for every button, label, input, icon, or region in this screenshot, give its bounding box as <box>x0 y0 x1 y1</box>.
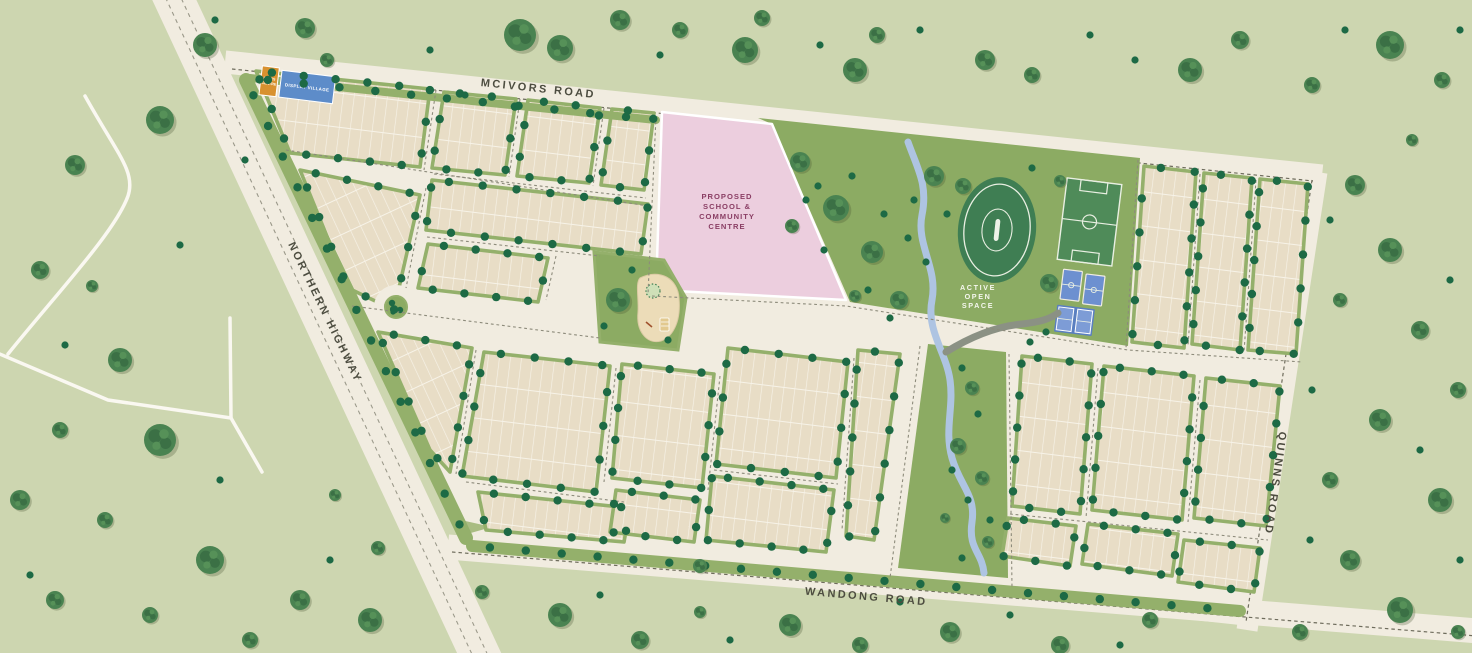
street-tree <box>1133 262 1141 270</box>
street-tree <box>641 178 649 186</box>
street-tree <box>585 500 593 508</box>
street-tree <box>280 134 288 142</box>
street-tree <box>1097 400 1105 408</box>
street-tree <box>1091 464 1099 472</box>
street-tree <box>799 546 807 554</box>
street-tree <box>881 460 889 468</box>
street-tree <box>1154 341 1162 349</box>
street-tree <box>1275 387 1283 395</box>
street-tree <box>567 533 575 541</box>
street-tree <box>480 516 488 524</box>
small-tree <box>958 554 965 561</box>
street-tree <box>503 249 511 257</box>
street-tree <box>382 367 390 375</box>
small-tree <box>1308 386 1315 393</box>
small-tree <box>964 496 971 503</box>
street-tree <box>590 488 598 496</box>
small-tree <box>211 16 218 23</box>
street-tree <box>1179 371 1187 379</box>
residential-block <box>1248 179 1308 354</box>
street-tree <box>853 365 861 373</box>
street-tree <box>837 424 845 432</box>
street-tree <box>586 109 594 117</box>
street-tree <box>1187 234 1195 242</box>
street-tree <box>1255 188 1263 196</box>
street-tree <box>522 546 530 554</box>
street-tree <box>418 149 426 157</box>
street-tree <box>1203 604 1211 612</box>
street-tree <box>1057 508 1065 516</box>
street-tree <box>1217 171 1225 179</box>
street-tree <box>334 154 342 162</box>
street-tree <box>827 507 835 515</box>
street-tree <box>390 305 398 313</box>
small-tree <box>326 556 333 563</box>
school-label-line2: SCHOOL & <box>703 202 751 211</box>
small-tree <box>1086 31 1093 38</box>
school-label-line1: PROPOSED <box>701 192 752 201</box>
small-tree <box>880 210 887 217</box>
street-tree <box>1301 216 1309 224</box>
street-tree <box>999 552 1007 560</box>
street-tree <box>421 336 429 344</box>
street-tree <box>697 368 705 376</box>
street-tree <box>550 105 558 113</box>
street-tree <box>715 427 723 435</box>
street-tree <box>1299 250 1307 258</box>
street-tree <box>1017 360 1025 368</box>
street-tree <box>1243 244 1251 252</box>
street-tree <box>819 485 827 493</box>
residential-block <box>1012 356 1092 514</box>
street-tree <box>660 492 668 500</box>
street-tree <box>614 404 622 412</box>
street-tree <box>1080 544 1088 552</box>
street-tree <box>514 102 522 110</box>
small-tree <box>61 341 68 348</box>
small-tree <box>1456 26 1463 33</box>
small-tree <box>910 196 917 203</box>
street-tree <box>255 75 263 83</box>
street-tree <box>366 157 374 165</box>
street-tree <box>293 183 301 191</box>
street-tree <box>1063 561 1071 569</box>
street-tree <box>427 183 435 191</box>
open-space-label: ACTIVE OPEN SPACE <box>960 283 996 310</box>
street-tree <box>479 181 487 189</box>
street-tree <box>1148 367 1156 375</box>
street-tree <box>844 501 852 509</box>
street-tree <box>585 175 593 183</box>
street-tree <box>367 336 375 344</box>
street-tree <box>476 369 484 377</box>
small-tree <box>1446 276 1453 283</box>
street-tree <box>1013 423 1021 431</box>
street-tree <box>1066 357 1074 365</box>
street-tree <box>708 474 716 482</box>
street-tree <box>848 433 856 441</box>
street-tree <box>459 392 467 400</box>
map-canvas: SALES CENTRE DISPLAY VILLAGE MCIVORS ROA… <box>0 0 1472 653</box>
residential-block <box>1178 540 1260 592</box>
small-tree <box>216 476 223 483</box>
street-tree <box>441 490 449 498</box>
street-tree <box>691 495 699 503</box>
street-tree <box>440 242 448 250</box>
street-tree <box>1077 497 1085 505</box>
street-tree <box>392 368 400 376</box>
street-tree <box>423 217 431 225</box>
street-tree <box>747 464 755 472</box>
street-tree <box>490 490 498 498</box>
street-tree <box>1031 557 1039 565</box>
street-tree <box>595 111 603 119</box>
street-tree <box>1011 455 1019 463</box>
street-tree <box>264 76 272 84</box>
small-tree <box>241 156 248 163</box>
street-tree <box>841 390 849 398</box>
street-tree <box>1183 302 1191 310</box>
street-tree <box>1163 529 1171 537</box>
open-space-label-line3: SPACE <box>962 301 994 310</box>
street-tree <box>1250 256 1258 264</box>
street-tree <box>603 136 611 144</box>
street-tree <box>645 146 653 154</box>
street-tree <box>1052 519 1060 527</box>
small-tree <box>1341 26 1348 33</box>
small-tree <box>461 91 468 98</box>
street-tree <box>1197 434 1205 442</box>
street-tree <box>590 143 598 151</box>
street-tree <box>1185 425 1193 433</box>
small-tree <box>958 364 965 371</box>
street-tree <box>1020 516 1028 524</box>
street-tree <box>814 472 822 480</box>
street-tree <box>429 286 437 294</box>
street-tree <box>773 568 781 576</box>
street-tree <box>520 121 528 129</box>
street-tree <box>1009 487 1017 495</box>
street-tree <box>352 306 360 314</box>
street-tree <box>343 176 351 184</box>
street-tree <box>422 118 430 126</box>
street-tree <box>411 212 419 220</box>
street-tree <box>1180 336 1188 344</box>
residential-block <box>1092 366 1194 520</box>
small-tree <box>1131 56 1138 63</box>
street-tree <box>1034 354 1042 362</box>
residential-block <box>706 476 834 552</box>
school-label-line4: CENTRE <box>708 222 745 231</box>
street-tree <box>1191 497 1199 505</box>
street-tree <box>557 176 565 184</box>
street-tree <box>845 574 853 582</box>
street-tree <box>539 276 547 284</box>
street-tree <box>546 189 554 197</box>
street-tree <box>1060 592 1068 600</box>
street-tree <box>787 481 795 489</box>
street-tree <box>514 236 522 244</box>
street-tree <box>1205 516 1213 524</box>
street-tree <box>506 134 514 142</box>
street-tree <box>641 532 649 540</box>
street-tree <box>1141 512 1149 520</box>
street-tree <box>1132 525 1140 533</box>
street-tree <box>916 580 924 588</box>
street-tree <box>1157 570 1165 578</box>
street-tree <box>426 86 434 94</box>
street-tree <box>580 193 588 201</box>
street-tree <box>1183 457 1191 465</box>
small-tree <box>628 266 635 273</box>
street-tree <box>1079 465 1087 473</box>
street-tree <box>724 474 732 482</box>
street-tree <box>599 168 607 176</box>
street-tree <box>633 477 641 485</box>
street-tree <box>464 436 472 444</box>
street-tree <box>1128 330 1136 338</box>
street-tree <box>453 341 461 349</box>
street-tree <box>523 480 531 488</box>
street-tree <box>1175 567 1183 575</box>
street-tree <box>719 393 727 401</box>
street-tree <box>481 232 489 240</box>
small-tree <box>1026 338 1033 345</box>
street-tree <box>603 388 611 396</box>
street-tree <box>1238 312 1246 320</box>
street-tree <box>1025 504 1033 512</box>
small-tree <box>1028 164 1035 171</box>
street-tree <box>363 78 371 86</box>
residential-block <box>1132 166 1196 348</box>
street-tree <box>447 229 455 237</box>
small-tree <box>1416 446 1423 453</box>
street-tree <box>756 477 764 485</box>
street-tree <box>701 453 709 461</box>
street-tree <box>302 151 310 159</box>
street-tree <box>396 398 404 406</box>
street-tree <box>1190 200 1198 208</box>
street-tree <box>448 455 456 463</box>
street-tree <box>433 454 441 462</box>
street-tree <box>614 197 622 205</box>
small-tree <box>922 258 929 265</box>
street-tree <box>842 358 850 366</box>
street-tree <box>405 189 413 197</box>
street-tree <box>1185 268 1193 276</box>
rural-track <box>230 318 231 418</box>
street-tree <box>781 468 789 476</box>
street-tree <box>736 539 744 547</box>
street-tree <box>553 496 561 504</box>
street-tree <box>1089 495 1097 503</box>
street-tree <box>697 484 705 492</box>
small-tree <box>943 210 950 217</box>
residential-block <box>612 364 714 488</box>
street-tree <box>1173 515 1181 523</box>
street-tree <box>1202 342 1210 350</box>
residential-block <box>1002 518 1076 566</box>
street-tree <box>1227 585 1235 593</box>
street-tree <box>426 459 434 467</box>
street-tree <box>531 353 539 361</box>
street-tree <box>1199 184 1207 192</box>
street-tree <box>1248 177 1256 185</box>
street-tree <box>536 531 544 539</box>
street-tree <box>1228 541 1236 549</box>
street-tree <box>952 583 960 591</box>
street-tree <box>397 274 405 282</box>
street-tree <box>1196 218 1204 226</box>
soccer-field <box>1057 178 1122 266</box>
street-tree <box>279 152 287 160</box>
small-tree <box>1456 556 1463 563</box>
street-tree <box>548 240 556 248</box>
street-tree <box>622 113 630 121</box>
small-tree <box>820 246 827 253</box>
street-tree <box>737 565 745 573</box>
street-tree <box>497 350 505 358</box>
street-tree <box>522 493 530 501</box>
open-space-label-line2: OPEN <box>965 292 992 301</box>
street-tree <box>1245 211 1253 219</box>
street-tree <box>300 72 308 80</box>
street-tree <box>634 362 642 370</box>
street-tree <box>564 357 572 365</box>
street-tree <box>390 331 398 339</box>
street-tree <box>834 458 842 466</box>
street-tree <box>610 500 618 508</box>
street-tree <box>665 480 673 488</box>
street-tree <box>692 523 700 531</box>
street-tree <box>557 484 565 492</box>
street-tree <box>1192 286 1200 294</box>
small-tree <box>848 172 855 179</box>
street-tree <box>846 467 854 475</box>
street-tree <box>1085 401 1093 409</box>
street-tree <box>705 506 713 514</box>
street-tree <box>443 94 451 102</box>
street-tree <box>599 422 607 430</box>
street-tree <box>808 354 816 362</box>
street-tree <box>1256 347 1264 355</box>
street-tree <box>1255 547 1263 555</box>
street-tree <box>407 91 415 99</box>
small-tree <box>802 196 809 203</box>
street-tree <box>502 166 510 174</box>
street-tree <box>472 245 480 253</box>
street-tree <box>611 436 619 444</box>
street-tree <box>1273 177 1281 185</box>
street-tree <box>572 101 580 109</box>
street-tree <box>455 520 463 528</box>
street-tree <box>1082 433 1090 441</box>
street-tree <box>418 267 426 275</box>
street-tree <box>1116 364 1124 372</box>
street-tree <box>628 488 636 496</box>
street-tree <box>1294 318 1302 326</box>
street-tree <box>741 346 749 354</box>
residential-block <box>716 348 848 478</box>
street-tree <box>1188 393 1196 401</box>
street-tree <box>442 165 450 173</box>
street-tree <box>617 503 625 511</box>
street-tree <box>1157 164 1165 172</box>
street-tree <box>504 528 512 536</box>
street-tree <box>323 244 331 252</box>
street-tree <box>460 289 468 297</box>
street-tree <box>454 423 462 431</box>
street-tree <box>300 79 308 87</box>
street-tree <box>458 469 466 477</box>
street-tree <box>643 203 651 211</box>
street-tree <box>474 168 482 176</box>
street-tree <box>1135 228 1143 236</box>
street-tree <box>1250 379 1258 387</box>
street-tree <box>850 399 858 407</box>
street-tree <box>616 247 624 255</box>
street-tree <box>512 185 520 193</box>
open-space-label-line1: ACTIVE <box>960 283 996 292</box>
street-tree <box>492 293 500 301</box>
street-tree <box>708 389 716 397</box>
small-tree <box>1116 641 1123 648</box>
street-tree <box>558 549 566 557</box>
small-tree <box>1306 536 1313 543</box>
street-tree <box>249 91 257 99</box>
street-tree <box>639 237 647 245</box>
street-tree <box>809 571 817 579</box>
street-tree <box>845 532 853 540</box>
street-tree <box>1241 278 1249 286</box>
small-tree <box>986 516 993 523</box>
sandpit <box>660 318 669 331</box>
small-tree <box>948 466 955 473</box>
street-tree <box>374 182 382 190</box>
street-tree <box>1125 566 1133 574</box>
street-tree <box>431 147 439 155</box>
street-tree <box>704 421 712 429</box>
street-tree <box>871 347 879 355</box>
street-tree <box>1304 183 1312 191</box>
street-tree <box>470 402 478 410</box>
street-tree <box>1195 581 1203 589</box>
street-tree <box>767 542 775 550</box>
street-tree <box>465 360 473 368</box>
street-tree <box>1194 252 1202 260</box>
street-tree <box>622 527 630 535</box>
street-tree <box>1245 324 1253 332</box>
small-tree <box>426 46 433 53</box>
small-tree <box>176 241 183 248</box>
street-tree <box>1094 432 1102 440</box>
small-tree <box>886 314 893 321</box>
street-tree <box>598 361 606 369</box>
street-tree <box>1131 598 1139 606</box>
small-tree <box>816 41 823 48</box>
street-tree <box>479 98 487 106</box>
street-tree <box>1296 284 1304 292</box>
street-tree <box>268 105 276 113</box>
small-tree <box>904 234 911 241</box>
street-tree <box>379 339 387 347</box>
street-tree <box>1253 222 1261 230</box>
small-tree <box>600 322 607 329</box>
street-tree <box>890 392 898 400</box>
small-tree <box>664 336 671 343</box>
small-tree <box>26 571 33 578</box>
small-tree <box>656 51 663 58</box>
